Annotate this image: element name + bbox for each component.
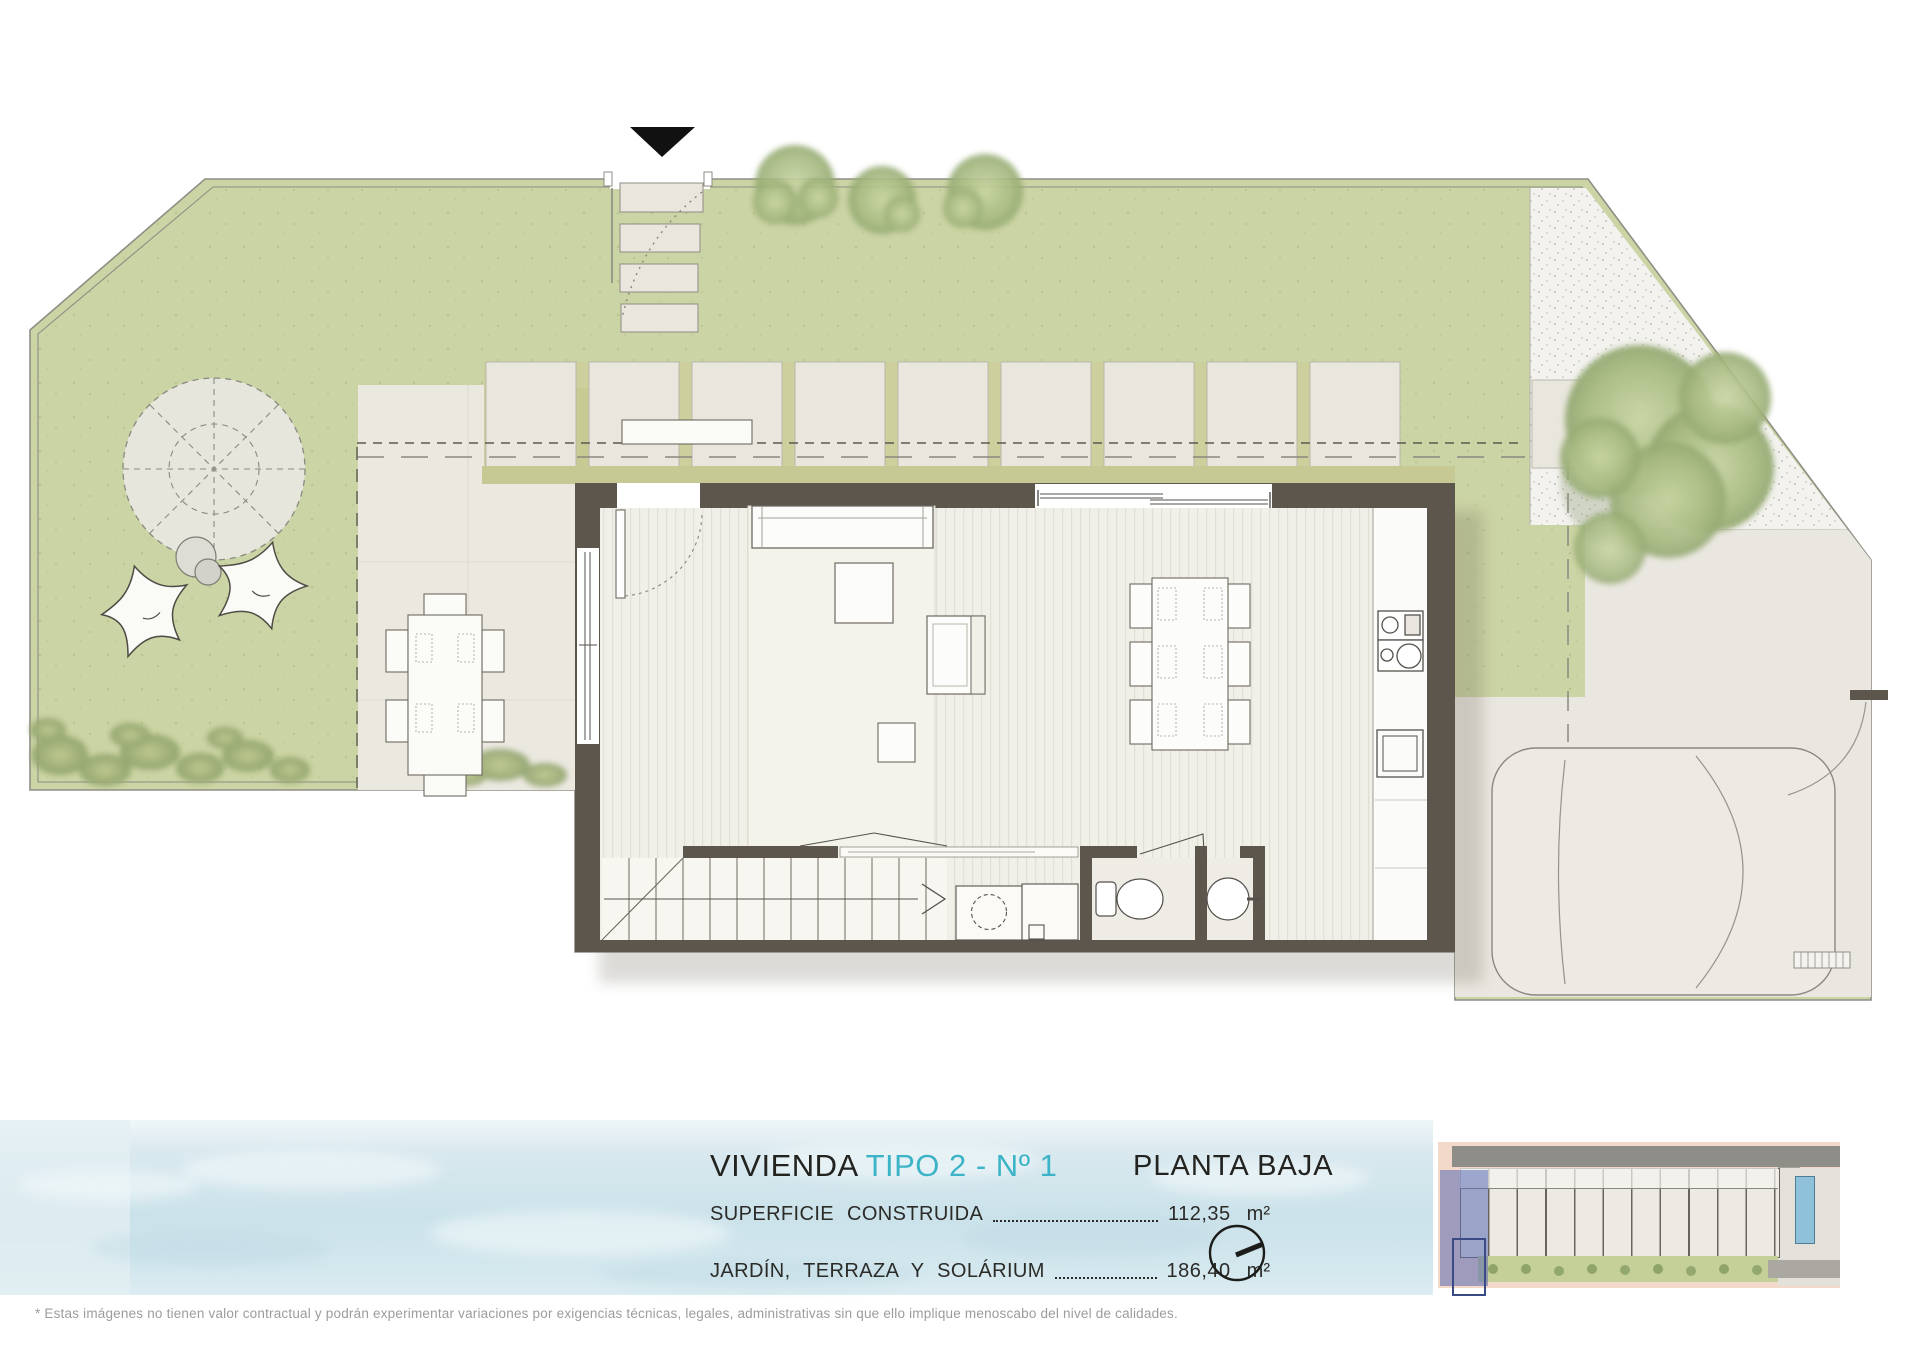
window-left-wall — [577, 548, 599, 744]
kitchen-counter — [1373, 508, 1427, 940]
toilet-bowl — [1117, 879, 1163, 919]
drain-grate — [1794, 952, 1850, 968]
garden-parasol — [123, 378, 305, 560]
house — [575, 483, 1483, 983]
parked-car-outline — [1492, 748, 1835, 995]
page: { "title": { "prefix": "VIVIENDA", "acce… — [0, 0, 1920, 1357]
staircase — [602, 858, 947, 940]
sofa — [752, 506, 933, 548]
dotted-leader — [993, 1220, 1158, 1222]
area-row-garden-terrace: JARDÍN, TERRAZA Y SOLÁRIUM 186,40 m² — [710, 1260, 1270, 1283]
north-compass-icon — [1206, 1222, 1268, 1284]
site-plan-thumbnail — [1438, 1142, 1840, 1288]
water-left-panel — [0, 1120, 130, 1295]
area-label: JARDÍN, TERRAZA Y SOLÁRIUM — [710, 1260, 1045, 1283]
plan-title: VIVIENDA TIPO 2 - Nº 1 — [710, 1148, 1057, 1184]
laundry-units — [956, 884, 1078, 940]
entry-bench — [622, 420, 752, 444]
thumbnail-road — [1452, 1146, 1840, 1167]
area-label: SUPERFICIE CONSTRUIDA — [710, 1203, 983, 1226]
dining-set — [1130, 578, 1250, 750]
toilet-tank — [1096, 882, 1116, 916]
coffee-table — [835, 563, 893, 623]
sliding-window-top — [1035, 484, 1272, 508]
thumbnail-gardens — [1478, 1256, 1778, 1282]
bathroom — [1092, 858, 1261, 940]
floor-plan-drawing — [0, 0, 1920, 1120]
north-triangle-icon — [630, 127, 695, 157]
dotted-leader — [1055, 1277, 1157, 1279]
plan-title-accent: TIPO 2 - Nº 1 — [866, 1148, 1058, 1183]
thumbnail-garden-trees — [1488, 1264, 1498, 1274]
floor-level-label: PLANTA BAJA — [1133, 1150, 1334, 1183]
thumbnail-highlighted-unit — [1440, 1170, 1488, 1286]
armchair — [927, 616, 985, 694]
thumbnail-roof-terraces — [1460, 1168, 1778, 1189]
thumbnail-pool — [1795, 1176, 1815, 1244]
disclaimer-text: * Estas imágenes no tienen valor contrac… — [35, 1306, 1178, 1321]
hedge-strip — [482, 466, 1455, 484]
side-table — [878, 723, 915, 762]
area-row-built-surface: SUPERFICIE CONSTRUIDA 112,35 m² — [710, 1203, 1270, 1226]
washbasin — [1207, 878, 1249, 920]
thumbnail-path — [1768, 1260, 1840, 1278]
thumbnail-highlighted-unit-core — [1452, 1238, 1486, 1296]
lawn-trees — [753, 145, 1023, 234]
plan-title-prefix: VIVIENDA — [710, 1148, 857, 1183]
